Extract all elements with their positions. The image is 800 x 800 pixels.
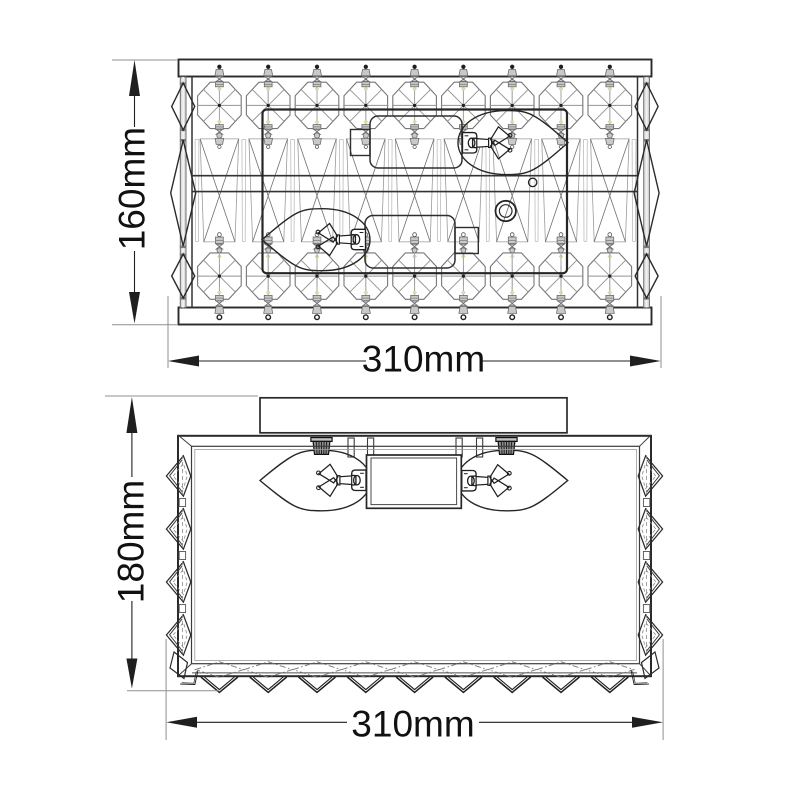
- svg-text:310mm: 310mm: [362, 339, 485, 380]
- svg-text:160mm: 160mm: [112, 127, 153, 250]
- svg-text:310mm: 310mm: [351, 703, 474, 744]
- svg-text:180mm: 180mm: [111, 480, 152, 603]
